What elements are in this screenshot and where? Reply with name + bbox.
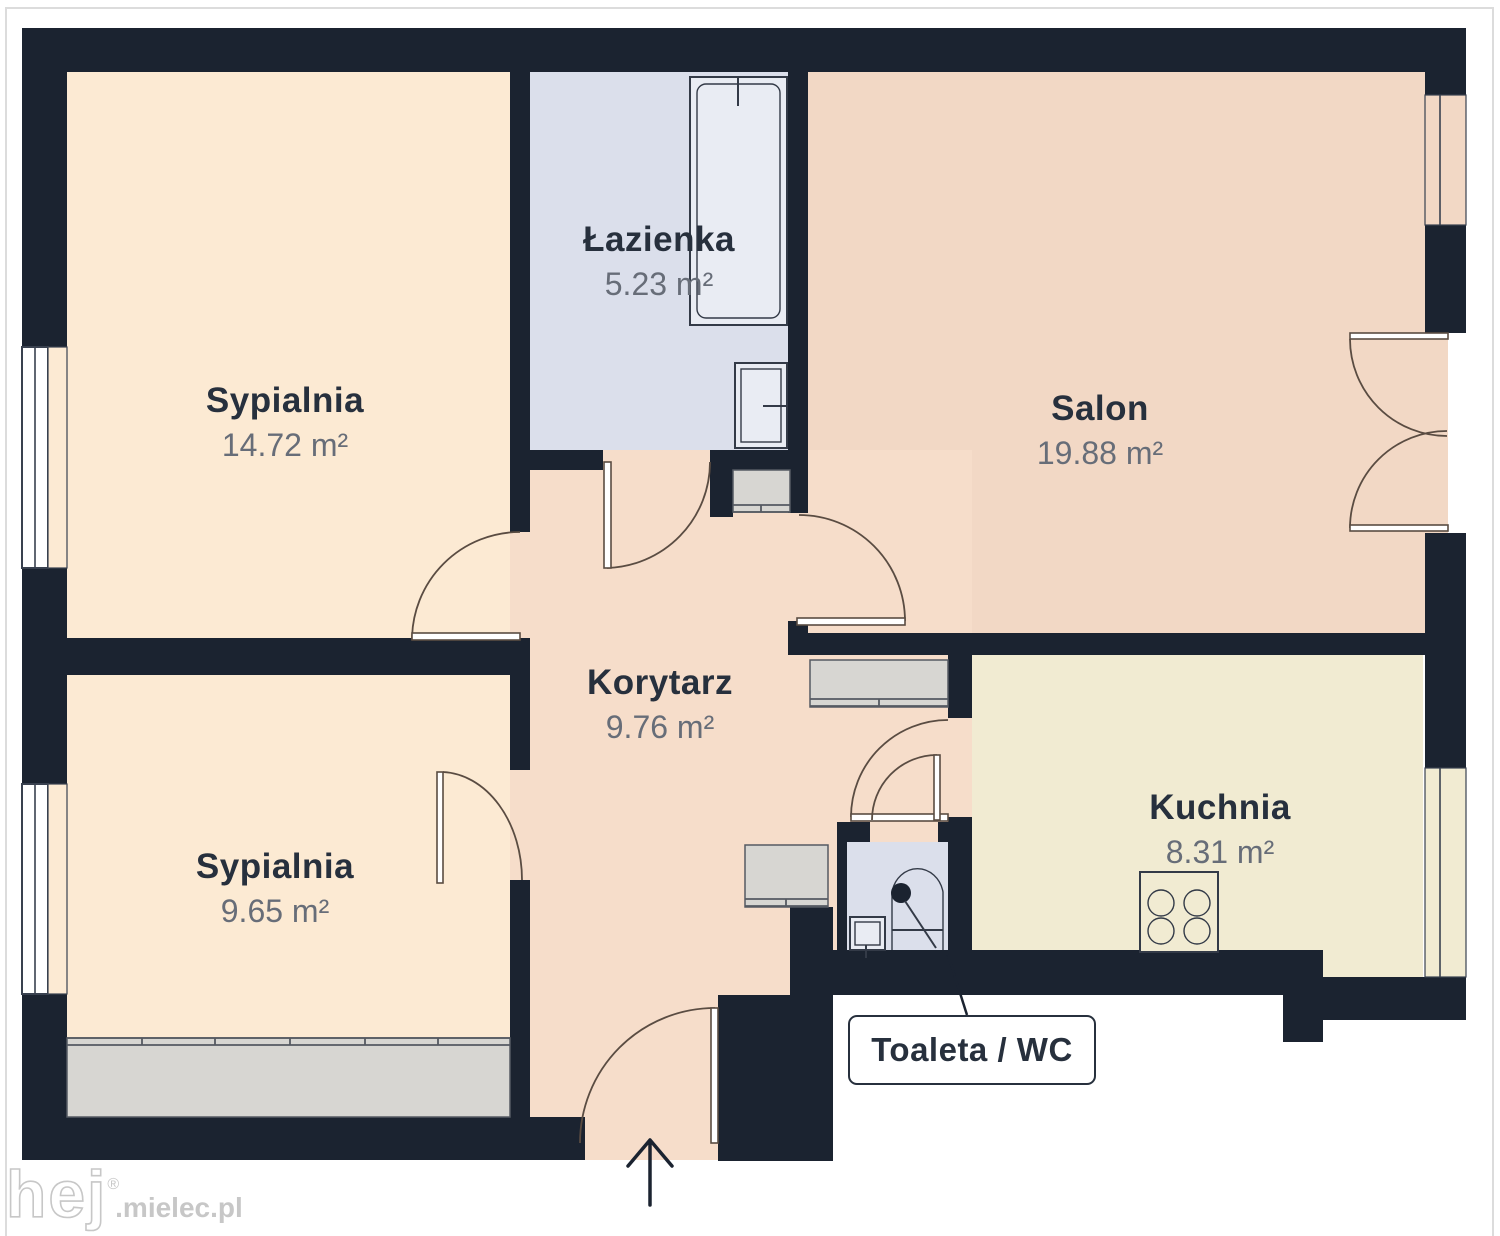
wall-top (22, 28, 1466, 72)
wall-bathroom-right (788, 72, 808, 450)
wardrobe-sypialnia-2 (67, 1038, 510, 1117)
window-sypialnia-1 (22, 347, 67, 568)
wall-bathroom-bottom-1 (510, 450, 603, 470)
wall-right-1 (1425, 72, 1466, 95)
wall-bottom-left (22, 1117, 585, 1160)
cabinet-corridor-lower (745, 845, 828, 907)
wall-corridor-nook (790, 907, 833, 995)
wall-wc-left (837, 842, 847, 950)
wc-callout-box: Toaleta / WC (848, 1015, 1096, 1085)
room-label-korytarz: Korytarz 9.76 m² (587, 662, 733, 750)
wall-left-2 (22, 568, 67, 784)
floor-plan-drawing (0, 0, 1500, 1236)
room-name: Sypialnia (206, 380, 364, 422)
room-area: 9.65 m² (196, 888, 354, 934)
wall-salon-left-1 (788, 450, 808, 513)
room-label-lazienka: Łazienka 5.23 m² (583, 219, 735, 307)
cabinet-corridor-top (733, 470, 790, 512)
wall-bathroom-jamb (710, 450, 733, 517)
wall-bedrooms-right-3 (510, 880, 530, 1117)
room-name: Korytarz (587, 662, 733, 704)
room-floor-kuchnia-notch (1317, 952, 1423, 977)
wall-kitchen-left-1 (948, 655, 972, 718)
watermark-suffix: .mielec.pl (115, 1192, 243, 1223)
watermark-registered-icon: ® (107, 1176, 119, 1193)
wall-right-3 (1425, 533, 1466, 768)
cabinet-corridor-middle (810, 660, 948, 707)
wall-wc-top-1 (837, 822, 870, 842)
room-area: 8.31 m² (1149, 829, 1291, 875)
window-salon (1425, 95, 1466, 225)
room-name: Salon (1037, 388, 1163, 430)
window-sypialnia-2 (22, 784, 67, 994)
room-floor-sypialnia-1 (67, 72, 510, 638)
room-label-kuchnia: Kuchnia 8.31 m² (1149, 787, 1291, 875)
room-name: Kuchnia (1149, 787, 1291, 829)
room-area: 14.72 m² (206, 422, 364, 468)
wall-wc-top-2 (938, 822, 958, 842)
watermark: hej®.mielec.pl (6, 1156, 243, 1232)
window-kuchnia (1425, 768, 1466, 977)
stove-icon (1140, 872, 1218, 952)
room-area: 9.76 m² (587, 704, 733, 750)
wall-bottom-step (1283, 995, 1323, 1042)
room-name: Sypialnia (196, 846, 354, 888)
wall-salon-bottom (788, 633, 1425, 655)
wall-bedroom-partition (22, 638, 530, 675)
room-area: 5.23 m² (583, 261, 735, 307)
watermark-logo: hej (6, 1157, 107, 1231)
wall-bottom-center (833, 950, 1323, 995)
room-label-salon: Salon 19.88 m² (1037, 388, 1163, 476)
wall-right-2 (1425, 225, 1466, 333)
wall-left-1 (22, 28, 67, 347)
bathroom-sink-icon (735, 363, 787, 448)
room-label-sypialnia-1: Sypialnia 14.72 m² (206, 380, 364, 468)
wall-bottom-right (1323, 977, 1466, 1020)
wall-entrance-right-block (718, 995, 833, 1161)
room-area: 19.88 m² (1037, 430, 1163, 476)
floor-plan-page: Sypialnia 14.72 m² Łazienka 5.23 m² Salo… (0, 0, 1500, 1236)
room-label-sypialnia-2: Sypialnia 9.65 m² (196, 846, 354, 934)
room-name: Łazienka (583, 219, 735, 261)
